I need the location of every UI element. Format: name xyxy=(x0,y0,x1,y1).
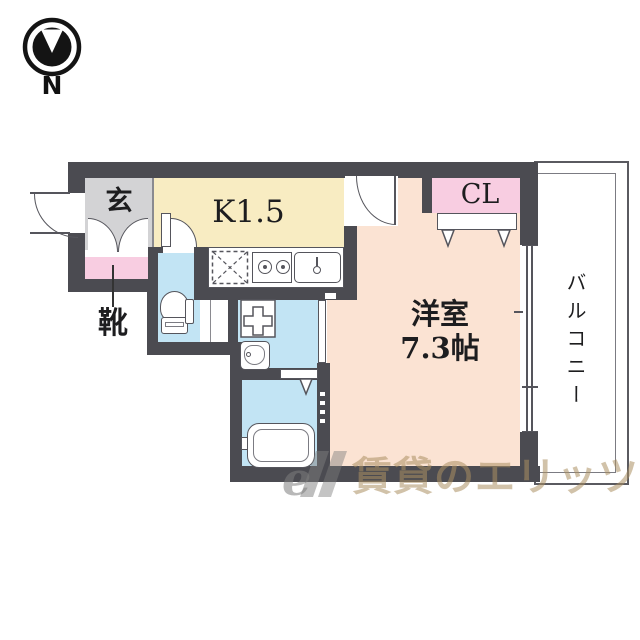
toilet-cistern xyxy=(185,299,194,324)
faucet-icon xyxy=(313,266,321,274)
wall xyxy=(228,288,238,344)
north-compass-icon: N xyxy=(16,10,92,98)
pipe-space xyxy=(210,300,229,342)
kitchen-label: K1.5 xyxy=(153,195,344,231)
wall-dash xyxy=(320,419,325,423)
shoe-leader-line xyxy=(112,265,114,307)
washing-machine-icon xyxy=(240,299,276,338)
wall-dash xyxy=(320,410,325,414)
wall xyxy=(230,466,540,482)
closet-folding-door-icon xyxy=(497,229,511,248)
window-pane-line xyxy=(531,245,533,432)
sliding-door-icon xyxy=(318,300,326,363)
stove-burner-dot xyxy=(263,265,267,269)
shoe-cabinet xyxy=(85,257,148,279)
western-room-size: 7.3帖 xyxy=(360,332,520,365)
bath-folding-door-icon xyxy=(299,378,313,396)
wall-dash xyxy=(320,401,325,405)
washbasin-faucet-dot xyxy=(246,352,251,357)
wall xyxy=(317,363,330,466)
genkan-label: 玄 xyxy=(85,186,153,217)
wall xyxy=(147,342,238,355)
closet-folding-door-icon xyxy=(441,229,455,248)
wall-dash xyxy=(320,392,325,396)
balcony-label: バルコニー xyxy=(550,232,586,452)
wall xyxy=(153,247,163,253)
wall xyxy=(68,162,538,178)
closet-label: CL xyxy=(432,179,528,210)
wall xyxy=(520,432,538,482)
bathtub-inner xyxy=(253,429,309,462)
wall xyxy=(68,162,85,193)
toilet-seat-line xyxy=(165,322,184,327)
bathtub-faucet xyxy=(241,437,248,450)
window-pane-line xyxy=(526,245,528,432)
floor-plan: 玄 K1.5 CL 洋室 7.3帖 バルコニー 靴 N e 賃貸のエリッツ xyxy=(0,0,640,640)
shoe-label: 靴 xyxy=(90,307,136,342)
refrigerator-space-icon xyxy=(211,250,249,285)
window-divider xyxy=(522,386,538,388)
compass-n-label: N xyxy=(42,71,63,98)
room-western-lower xyxy=(327,300,361,466)
closet-shelf xyxy=(437,213,517,230)
wall xyxy=(422,162,432,213)
sliding-window-icon xyxy=(522,245,538,432)
wall-notch xyxy=(325,293,336,299)
stove-burner-dot xyxy=(281,265,285,269)
wall xyxy=(344,226,357,300)
faucet-stem xyxy=(316,257,318,266)
western-room-label: 洋室 xyxy=(360,298,520,331)
